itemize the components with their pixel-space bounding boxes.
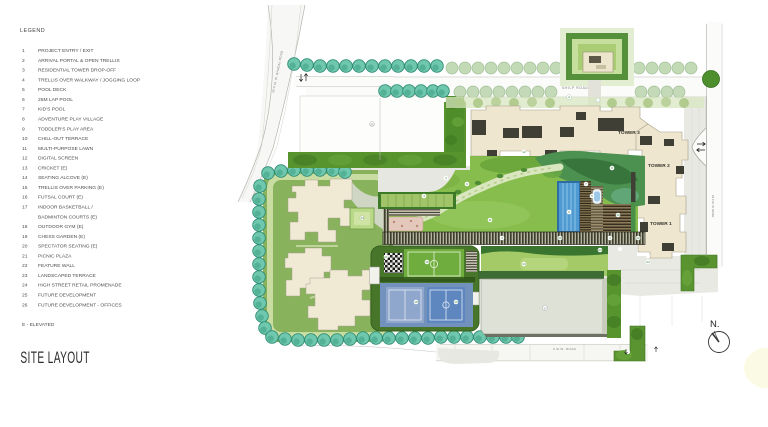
svg-text:2: 2 <box>568 95 570 99</box>
svg-text:ADVENTURE PLAY VILLAGE: ADVENTURE PLAY VILLAGE <box>38 117 104 123</box>
svg-text:24: 24 <box>22 283 28 289</box>
svg-text:TRELLIS OVER PARKING (E): TRELLIS OVER PARKING (E) <box>38 185 104 191</box>
svg-text:16: 16 <box>425 260 429 264</box>
svg-text:3: 3 <box>423 194 425 198</box>
svg-text:13: 13 <box>22 165 28 171</box>
svg-text:4: 4 <box>501 236 503 240</box>
svg-text:14: 14 <box>22 175 28 181</box>
svg-text:ARRIVAL PORTAL & OPEN TRELLIS: ARRIVAL PORTAL & OPEN TRELLIS <box>38 58 120 64</box>
svg-text:1: 1 <box>22 48 25 54</box>
svg-text:21: 21 <box>22 253 28 259</box>
svg-text:SPECTATOR SEATING (E): SPECTATOR SEATING (E) <box>38 244 98 250</box>
svg-text:CHILL-OUT TERRACE: CHILL-OUT TERRACE <box>38 136 89 142</box>
svg-text:19: 19 <box>454 300 458 304</box>
svg-text:10: 10 <box>616 213 620 217</box>
svg-text:4: 4 <box>445 176 447 180</box>
svg-text:9: 9 <box>22 126 25 132</box>
svg-text:9 M.W. ROAD: 9 M.W. ROAD <box>553 347 577 351</box>
svg-text:SHILP ROAD: SHILP ROAD <box>562 86 588 90</box>
svg-text:6: 6 <box>22 97 25 103</box>
svg-text:TRELLIS OVER WALKWAY / JOGGING: TRELLIS OVER WALKWAY / JOGGING LOOP <box>38 77 140 83</box>
svg-text:5: 5 <box>22 87 25 93</box>
svg-text:PICNIC PLAZA: PICNIC PLAZA <box>38 253 72 259</box>
svg-text:14: 14 <box>360 216 364 220</box>
svg-text:INDOOR BASKETBALL /: INDOOR BASKETBALL / <box>38 205 93 211</box>
svg-text:TODDLER'S PLAY AREA: TODDLER'S PLAY AREA <box>38 126 94 132</box>
svg-text:25: 25 <box>370 122 374 126</box>
svg-text:CRICKET (E): CRICKET (E) <box>38 165 68 171</box>
svg-text:7: 7 <box>22 107 25 113</box>
svg-text:6: 6 <box>568 210 570 214</box>
svg-text:25M LAP POOL: 25M LAP POOL <box>38 97 73 103</box>
svg-text:RESIDENTIAL TOWER DROP-OFF: RESIDENTIAL TOWER DROP-OFF <box>38 68 116 74</box>
svg-text:2: 2 <box>22 58 25 64</box>
svg-text:TOWER 2: TOWER 2 <box>648 163 670 169</box>
svg-text:FEATURE WALL: FEATURE WALL <box>38 263 75 269</box>
svg-text:20: 20 <box>558 236 562 240</box>
svg-text:5: 5 <box>591 194 593 198</box>
svg-text:FUTSAL COURT (E): FUTSAL COURT (E) <box>38 195 83 201</box>
svg-text:17: 17 <box>22 205 28 211</box>
svg-text:22: 22 <box>22 263 28 269</box>
svg-text:3: 3 <box>22 68 25 74</box>
svg-text:18.0 M. W. ROAD: 18.0 M. W. ROAD <box>711 195 715 217</box>
svg-text:4: 4 <box>22 77 25 83</box>
svg-text:9: 9 <box>466 182 468 186</box>
svg-text:15: 15 <box>22 185 28 191</box>
svg-text:12: 12 <box>522 150 526 154</box>
svg-text:KID'S POOL: KID'S POOL <box>38 107 66 113</box>
svg-text:23: 23 <box>598 248 602 252</box>
svg-text:11: 11 <box>488 218 491 222</box>
svg-text:LANDSCAPED TERRACE: LANDSCAPED TERRACE <box>38 273 97 279</box>
svg-text:POOL DECK: POOL DECK <box>38 87 67 93</box>
svg-text:22: 22 <box>636 236 640 240</box>
svg-text:SITE LAYOUT: SITE LAYOUT <box>20 347 89 366</box>
svg-text:TOWER 3: TOWER 3 <box>618 130 640 136</box>
svg-text:FUTURE DEVELOPMENT: FUTURE DEVELOPMENT <box>38 293 96 299</box>
svg-text:N.: N. <box>710 319 720 330</box>
svg-text:TOWER 1: TOWER 1 <box>650 221 672 227</box>
svg-text:21: 21 <box>384 255 388 259</box>
svg-text:LEGEND: LEGEND <box>20 28 45 34</box>
svg-text:8: 8 <box>22 117 25 123</box>
svg-text:7: 7 <box>585 182 587 186</box>
svg-text:HIGH STREET RETAIL PROMENADE: HIGH STREET RETAIL PROMENADE <box>38 283 122 289</box>
svg-text:SEATING ALCOVE (E): SEATING ALCOVE (E) <box>38 175 88 181</box>
svg-text:20: 20 <box>22 244 28 250</box>
svg-text:FUTURE DEVELOPMENT - OFFICES: FUTURE DEVELOPMENT - OFFICES <box>38 302 122 308</box>
svg-text:11: 11 <box>22 146 27 152</box>
svg-text:E - ELEVATED: E - ELEVATED <box>22 322 55 328</box>
svg-text:10: 10 <box>22 136 28 142</box>
svg-text:BADMINTON COURTS (E): BADMINTON COURTS (E) <box>38 214 97 220</box>
svg-text:OUTDOOR GYM (E): OUTDOOR GYM (E) <box>38 224 84 230</box>
svg-text:26: 26 <box>22 302 28 308</box>
svg-text:MULTI-PURPOSE LAWN: MULTI-PURPOSE LAWN <box>38 146 94 152</box>
svg-text:23: 23 <box>22 273 28 279</box>
svg-text:4: 4 <box>609 236 611 240</box>
svg-text:17: 17 <box>543 306 547 310</box>
svg-text:16: 16 <box>22 195 28 201</box>
svg-text:13: 13 <box>522 262 526 266</box>
svg-text:12: 12 <box>22 156 28 162</box>
svg-text:24: 24 <box>646 260 650 264</box>
svg-text:CHESS GARDEN (E): CHESS GARDEN (E) <box>38 234 85 240</box>
svg-text:18: 18 <box>414 300 418 304</box>
svg-text:DIGITAL SCREEN: DIGITAL SCREEN <box>38 156 79 162</box>
svg-text:PROJECT ENTRY / EXIT: PROJECT ENTRY / EXIT <box>38 48 93 54</box>
svg-text:19: 19 <box>22 234 28 240</box>
svg-text:8: 8 <box>611 166 613 170</box>
svg-text:25: 25 <box>22 293 28 299</box>
svg-text:18: 18 <box>22 224 28 230</box>
